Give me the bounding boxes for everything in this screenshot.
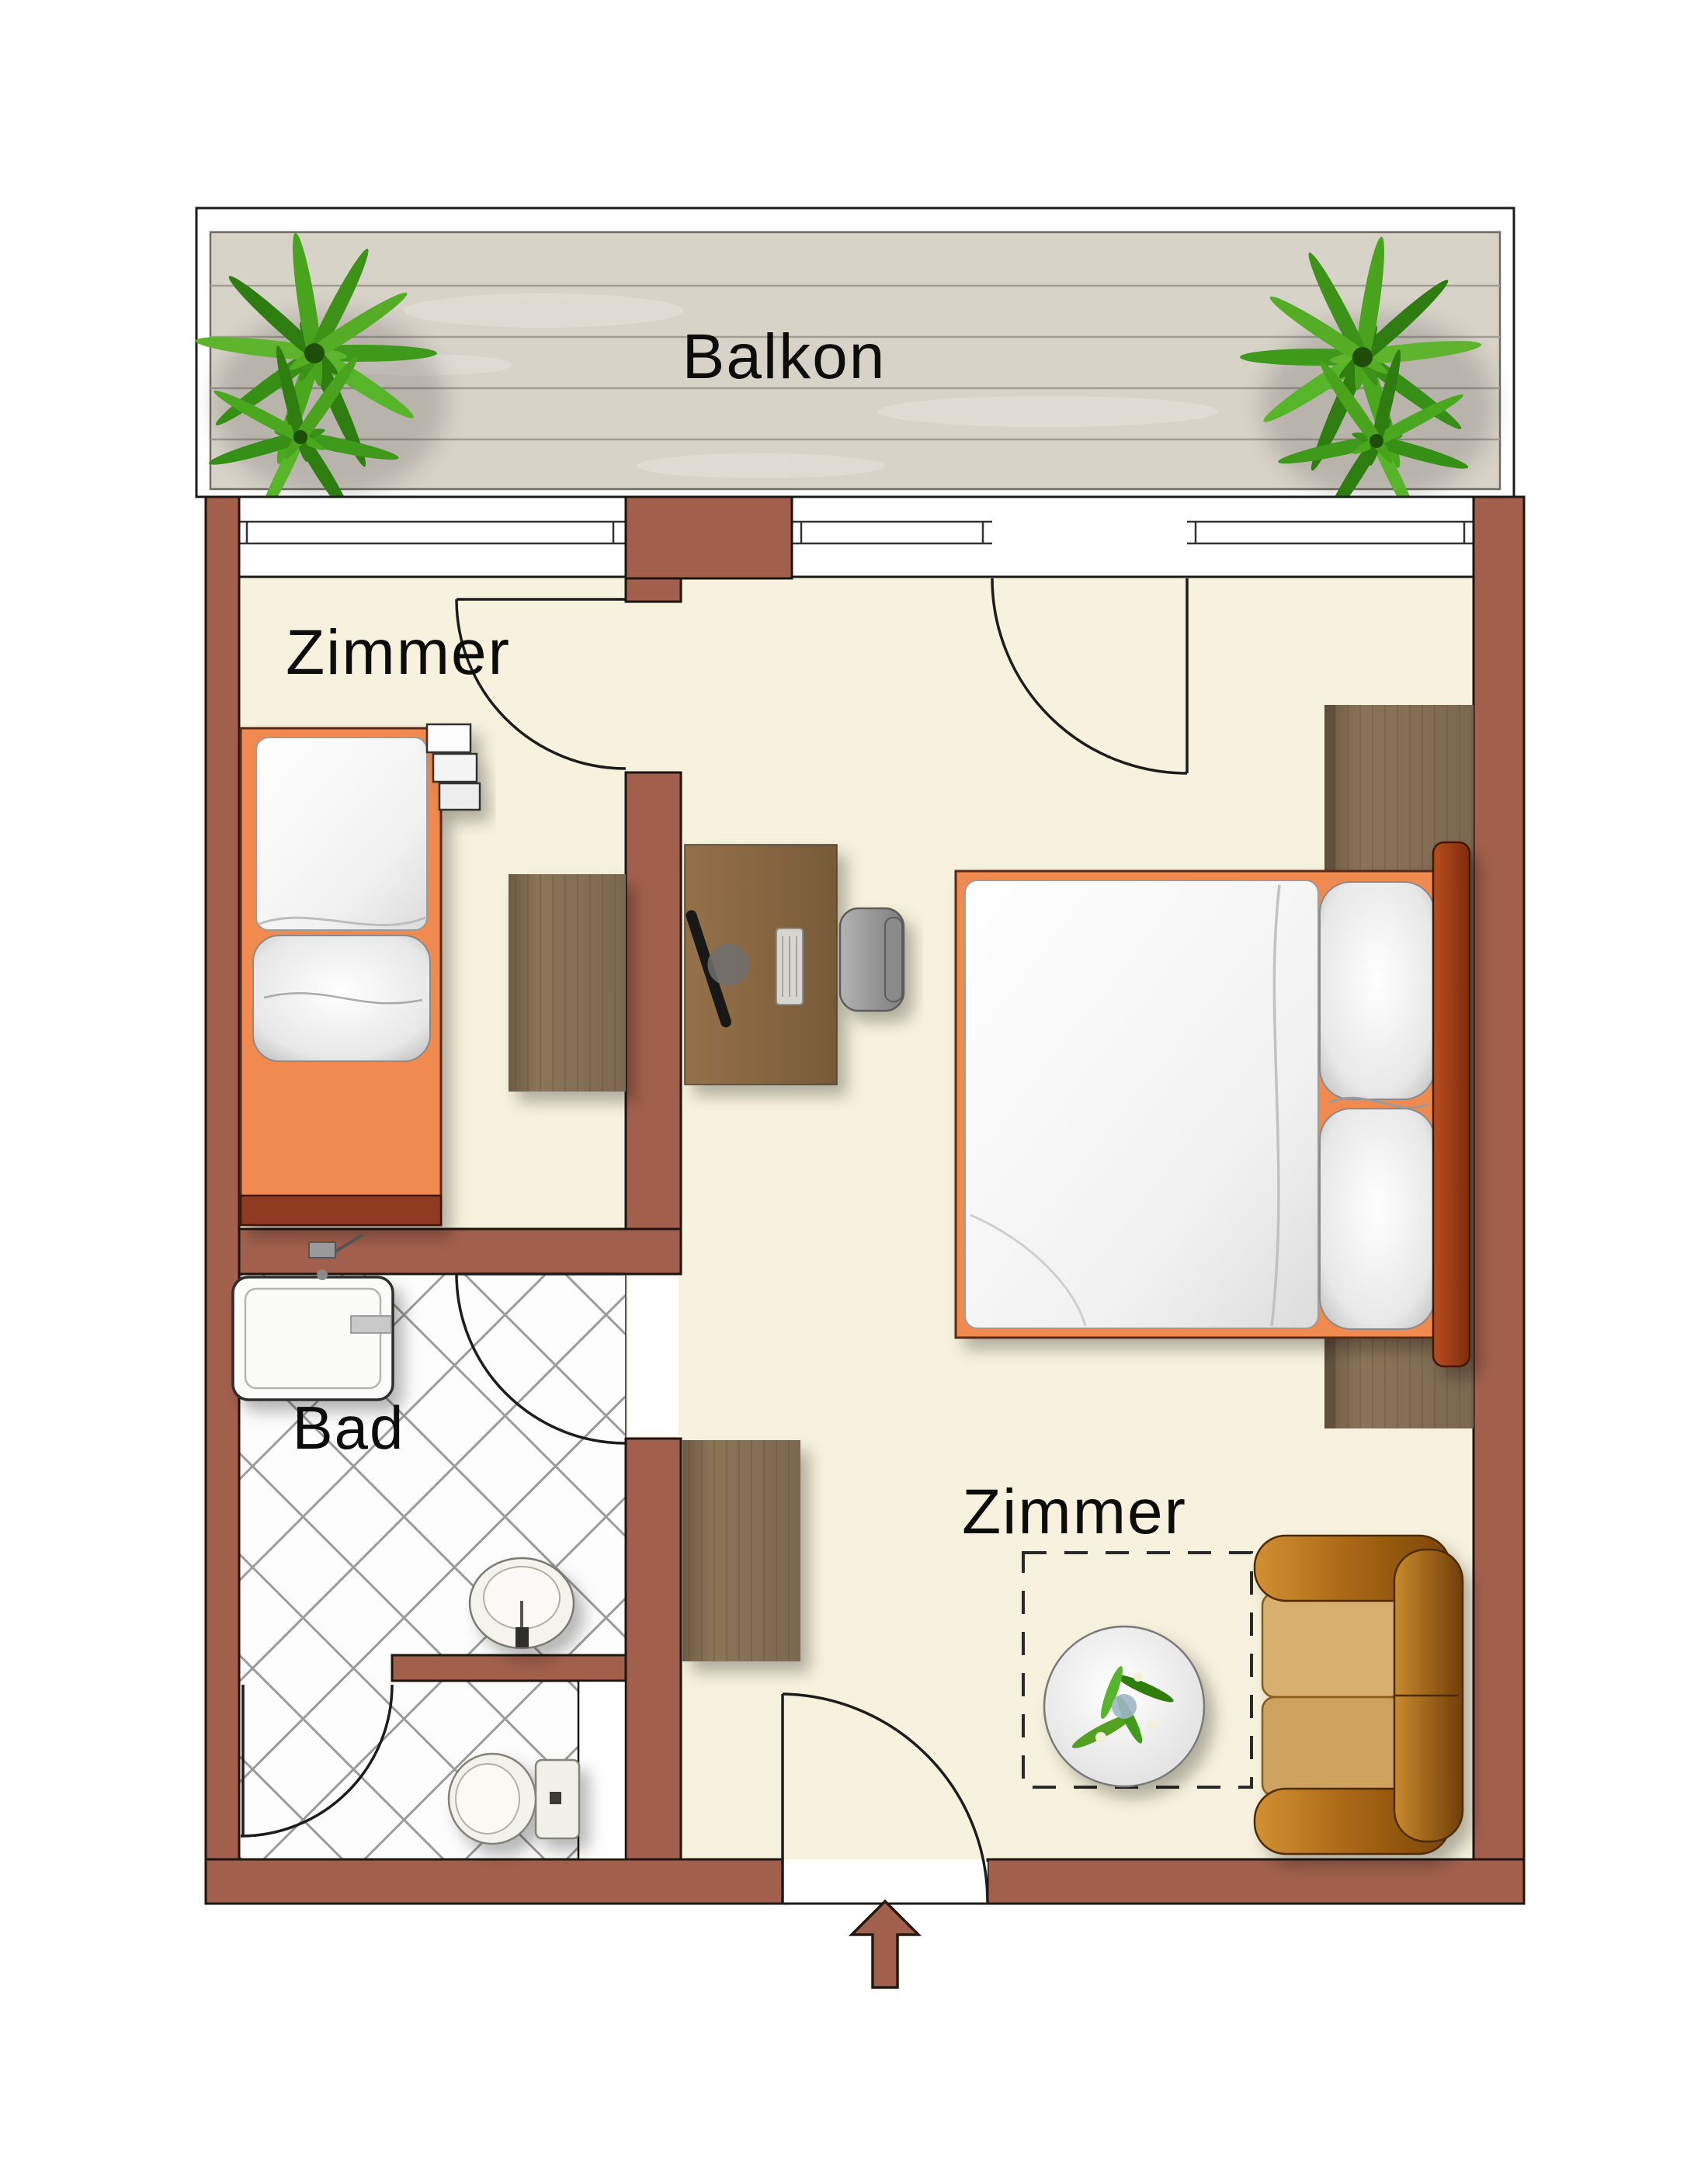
floor-plan-page: Balkon (0, 0, 1708, 2173)
wall-pier-stub (626, 578, 681, 602)
entry-arrow-icon (852, 1901, 918, 1987)
coffee-table-icon (1044, 1626, 1204, 1786)
window-sill (239, 497, 1474, 577)
bathroom-label: Bad (293, 1394, 405, 1462)
wall-bathroom-top (239, 1229, 681, 1274)
wall-left (206, 497, 239, 1904)
sofa-icon (1255, 1536, 1463, 1854)
wall-bottom-left (206, 1859, 783, 1904)
wall-interior-upper (626, 772, 681, 1274)
washbasin-icon (470, 1558, 574, 1648)
room-left-label: Zimmer (286, 617, 511, 688)
bathroom-doorway (628, 1276, 679, 1436)
dresser-icon (509, 874, 626, 1092)
single-bed-icon (241, 728, 441, 1225)
headboard-icon (1433, 842, 1470, 1366)
entry-doorway (783, 1862, 988, 1901)
wall-right (1474, 497, 1524, 1904)
balcony-label: Balkon (682, 321, 887, 392)
floor-plan: Balkon (0, 0, 1708, 2173)
office-chair-icon (840, 908, 904, 1011)
wall-window-pier (626, 497, 792, 578)
sideboard-icon (682, 1440, 800, 1661)
wall-bottom-right (988, 1859, 1524, 1904)
wall-wc-stub (392, 1655, 626, 1681)
balcony: Balkon (195, 208, 1514, 533)
window-band (239, 497, 1474, 577)
wall-interior-lower (626, 1439, 681, 1859)
double-bed-icon (956, 842, 1470, 1366)
keyboard-icon (776, 929, 803, 1005)
toilet-icon (449, 1754, 579, 1844)
duct-shaft-icon (578, 1681, 626, 1859)
room-main-label: Zimmer (962, 1477, 1187, 1547)
